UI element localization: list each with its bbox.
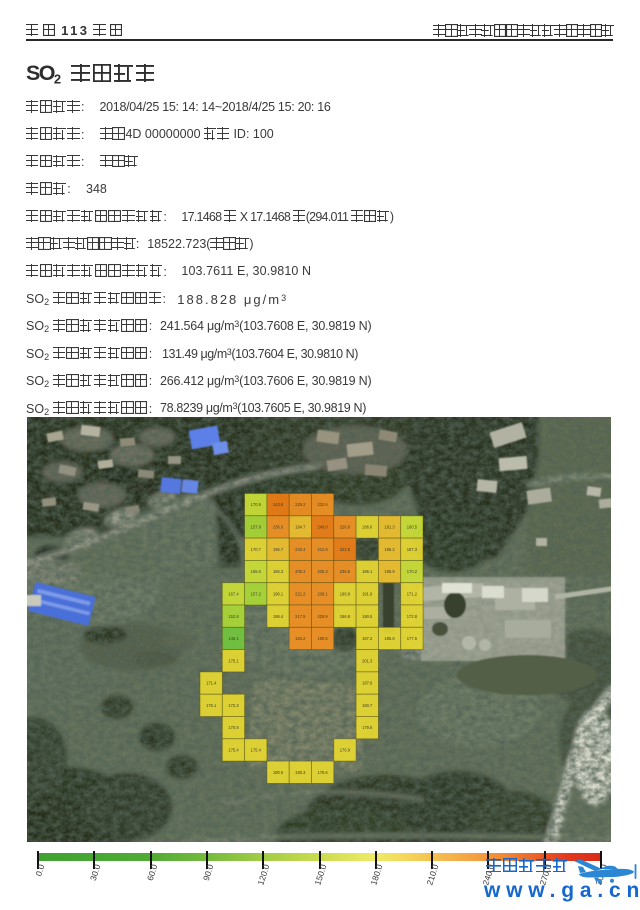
svg-text:180.7: 180.7 [362,703,373,708]
svg-text:171.2: 171.2 [407,591,418,596]
svg-text:221.2: 221.2 [295,591,306,596]
svg-text:175.4: 175.4 [251,748,262,753]
svg-text:190.5: 190.5 [362,614,373,619]
svg-text:243.6: 243.6 [273,502,284,507]
svg-text:235.3: 235.3 [317,569,328,574]
svg-text:190.5: 190.5 [317,636,328,641]
svg-text:175.1: 175.1 [206,703,217,708]
svg-text:196.9: 196.9 [384,569,395,574]
svg-text:232.6: 232.6 [317,502,328,507]
svg-text:160.5: 160.5 [407,525,418,530]
svg-text:157.9: 157.9 [251,525,262,530]
svg-text:190.3: 190.3 [295,770,306,775]
svg-text:170.9: 170.9 [251,502,262,507]
svg-text:187.6: 187.6 [362,681,373,686]
svg-text:196.1: 196.1 [273,591,284,596]
svg-text:238.1: 238.1 [317,591,328,596]
svg-text:172.8: 172.8 [407,614,418,619]
svg-text:187.3: 187.3 [407,547,418,552]
svg-text:186.3: 186.3 [273,569,284,574]
svg-text:229.9: 229.9 [317,614,328,619]
svg-text:186.1: 186.1 [362,569,373,574]
svg-text:191.3: 191.3 [384,525,395,530]
svg-text:170.2: 170.2 [407,569,418,574]
svg-text:177.5: 177.5 [407,636,418,641]
svg-text:184.2: 184.2 [295,636,306,641]
svg-text:222.8: 222.8 [340,547,351,552]
svg-text:175.1: 175.1 [228,658,239,663]
svg-text:194.7: 194.7 [295,525,306,530]
svg-text:172.3: 172.3 [228,703,239,708]
svg-text:196.8: 196.8 [340,591,351,596]
svg-text:201.3: 201.3 [362,658,373,663]
svg-text:217.5: 217.5 [295,614,306,619]
svg-text:240.0: 240.0 [317,525,328,530]
svg-text:212.9: 212.9 [317,547,328,552]
svg-text:196.4: 196.4 [273,614,284,619]
svg-text:176.9: 176.9 [340,748,351,753]
svg-text:152.8: 152.8 [228,614,239,619]
svg-text:146.1: 146.1 [228,636,239,641]
svg-text:187.2: 187.2 [362,636,373,641]
svg-text:170.8: 170.8 [228,725,239,730]
svg-text:157.2: 157.2 [251,591,262,596]
svg-text:167.4: 167.4 [228,591,239,596]
svg-text:185.8: 185.8 [384,636,395,641]
svg-text:236.0: 236.0 [273,525,284,530]
svg-text:195.7: 195.7 [273,547,284,552]
svg-text:170.7: 170.7 [251,547,262,552]
svg-text:205.3: 205.3 [295,569,306,574]
svg-text:171.4: 171.4 [206,681,217,686]
svg-text:175.4: 175.4 [228,748,239,753]
svg-text:175.6: 175.6 [317,770,328,775]
svg-text:165.0: 165.0 [251,569,262,574]
svg-text:191.9: 191.9 [362,591,373,596]
svg-text:226.9: 226.9 [340,525,351,530]
svg-text:195.2: 195.2 [384,547,395,552]
svg-text:190.6: 190.6 [273,770,284,775]
svg-text:236.5: 236.5 [340,569,351,574]
svg-text:186.6: 186.6 [362,525,373,530]
svg-text:179.6: 179.6 [362,725,373,730]
svg-text:196.8: 196.8 [340,614,351,619]
svg-text:229.2: 229.2 [295,502,306,507]
svg-text:232.4: 232.4 [295,547,306,552]
